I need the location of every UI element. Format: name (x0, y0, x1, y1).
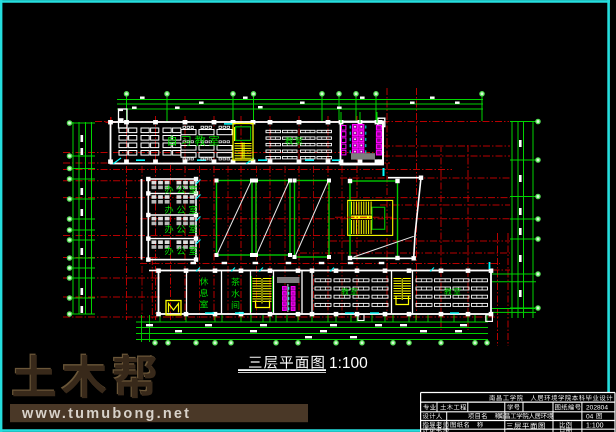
svg-text:www.tumubong.net: www.tumubong.net (21, 406, 191, 422)
svg-text:1:100: 1:100 (329, 355, 368, 372)
svg-text:202804: 202804 (586, 405, 608, 412)
svg-text:1:100: 1:100 (586, 422, 604, 429)
svg-text:04: 04 (586, 413, 594, 420)
